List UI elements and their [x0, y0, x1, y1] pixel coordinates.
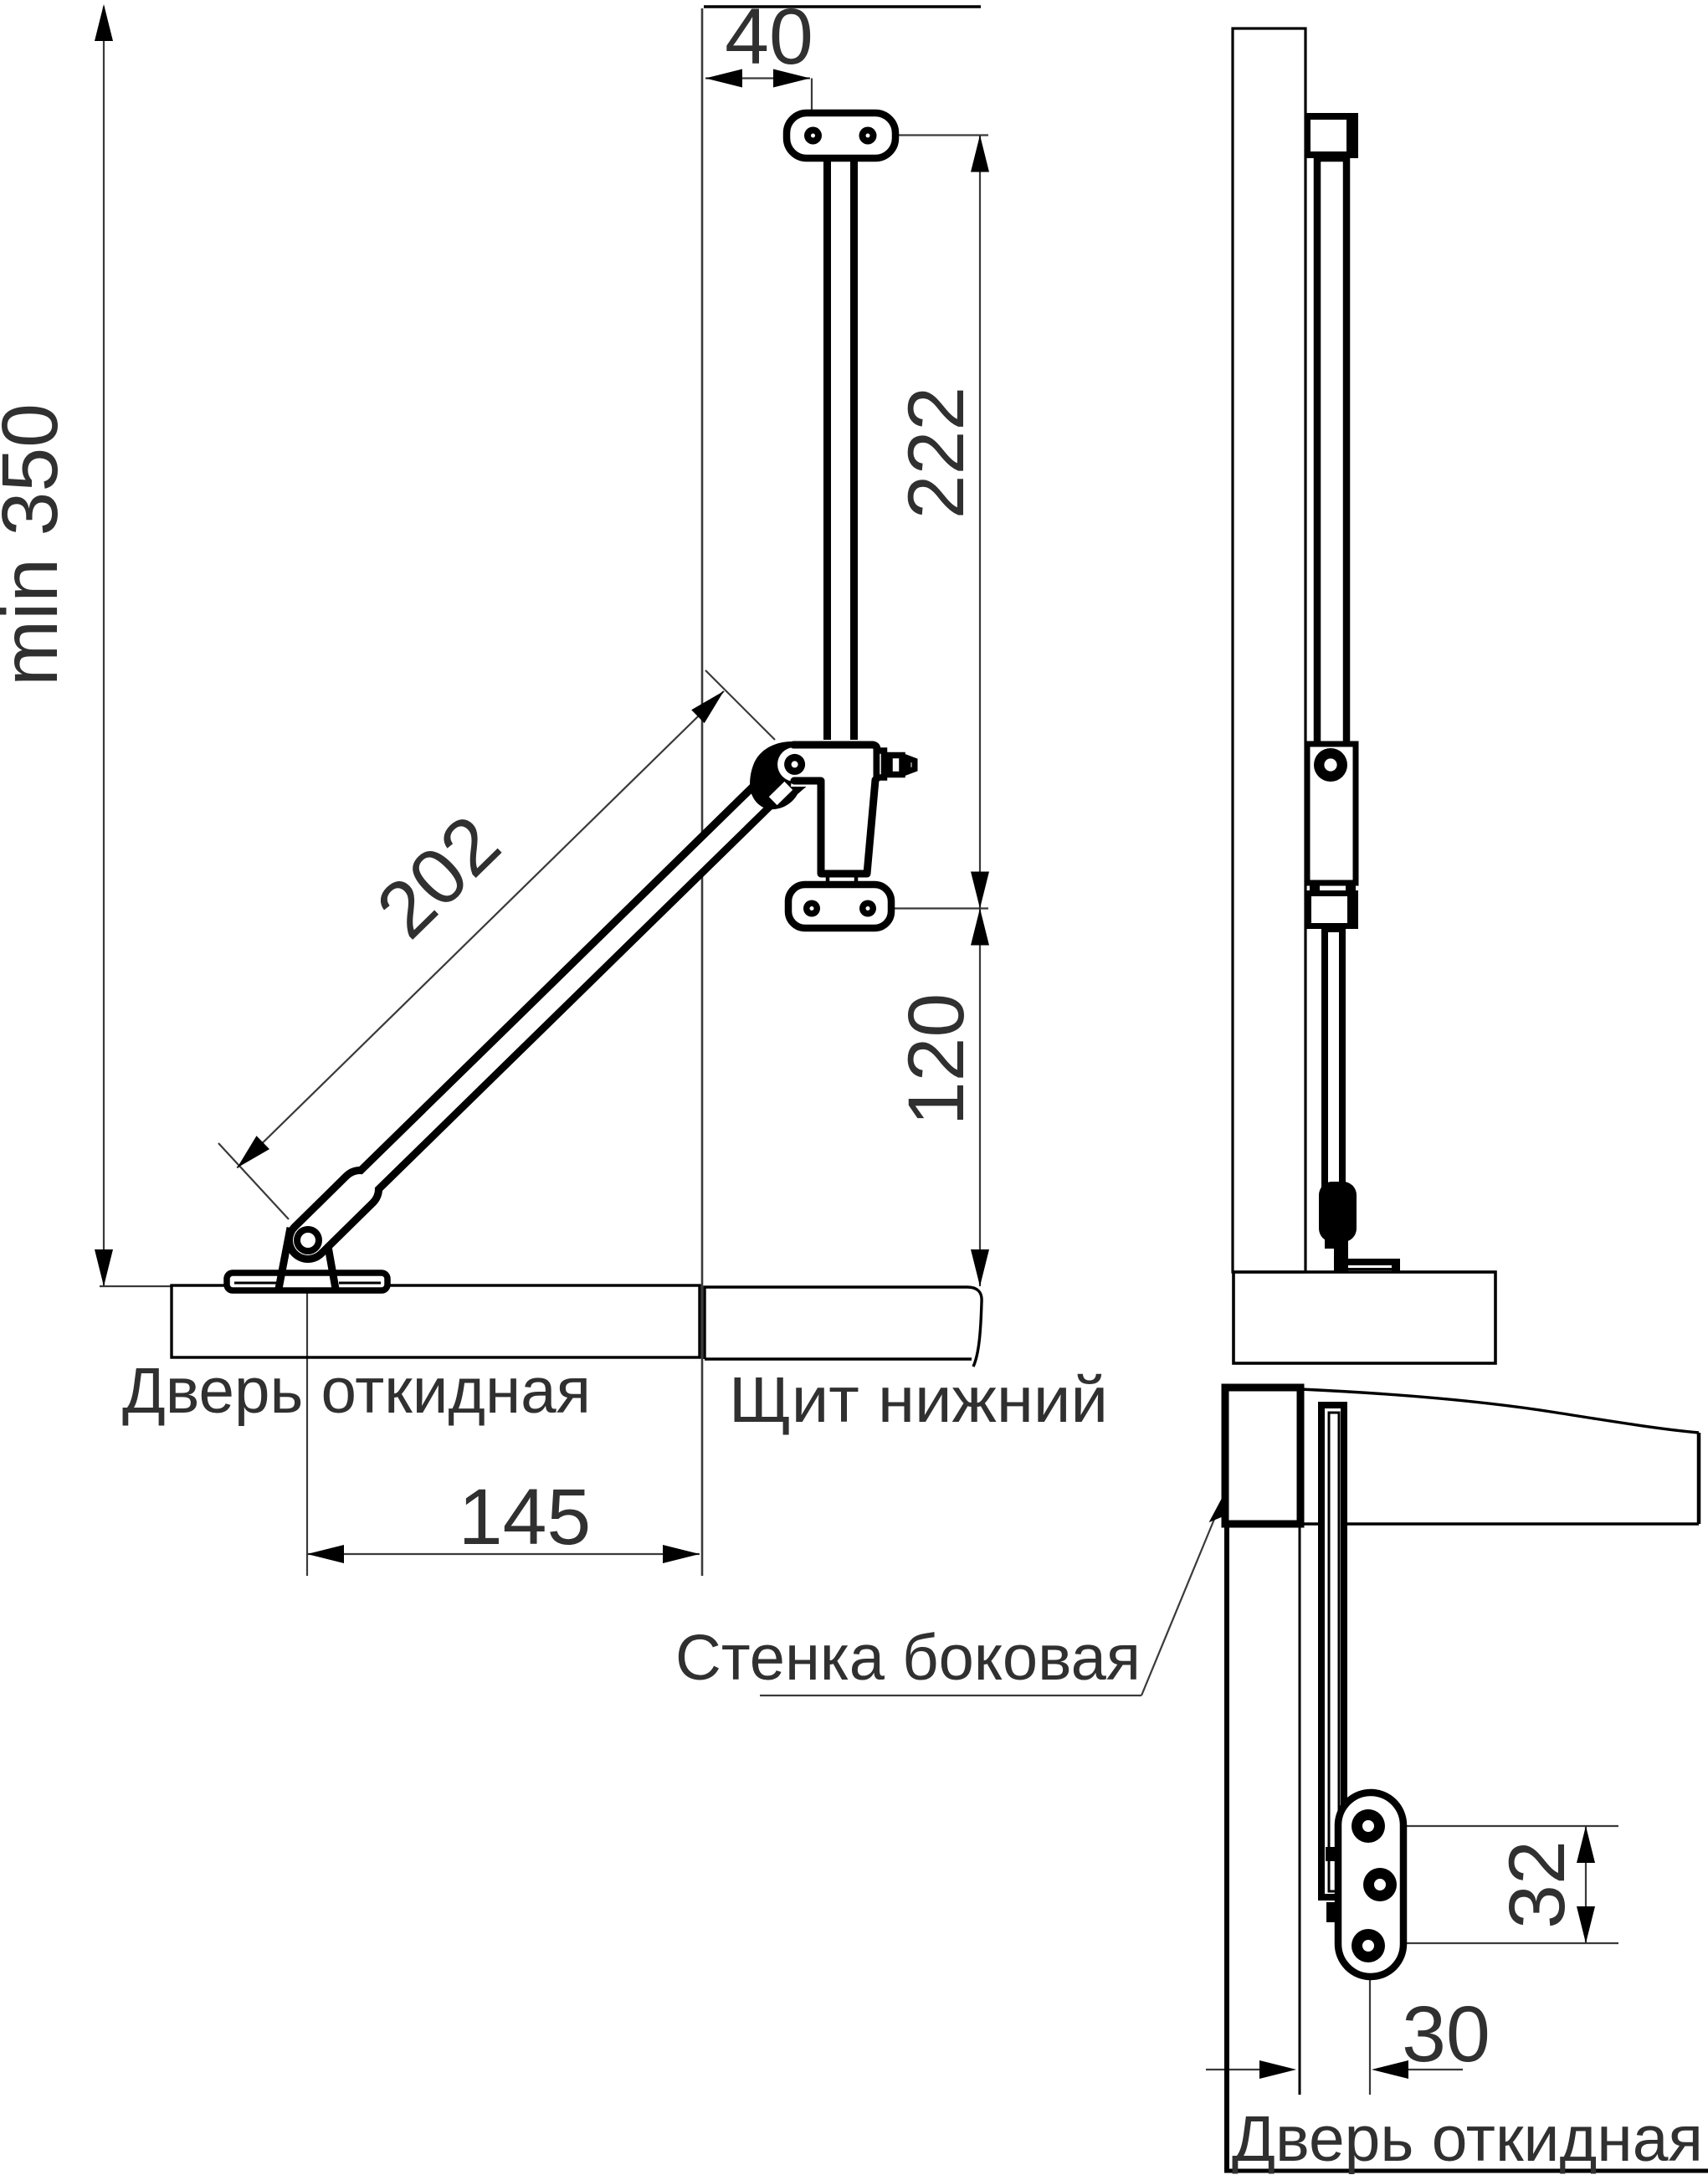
- svg-text:145: 145: [459, 1473, 592, 1562]
- svg-text:32: 32: [1493, 1840, 1582, 1929]
- svg-text:Стенка боковая: Стенка боковая: [675, 1622, 1141, 1694]
- svg-text:min 350: min 350: [0, 403, 74, 686]
- svg-text:30: 30: [1402, 1990, 1490, 2079]
- svg-text:40: 40: [725, 0, 813, 81]
- svg-text:Щит нижний: Щит нижний: [729, 1364, 1108, 1436]
- svg-text:Дверь откидная: Дверь откидная: [1232, 2103, 1703, 2175]
- svg-text:120: 120: [892, 993, 981, 1126]
- svg-text:Дверь откидная: Дверь откидная: [122, 1355, 591, 1427]
- svg-text:222: 222: [892, 387, 981, 520]
